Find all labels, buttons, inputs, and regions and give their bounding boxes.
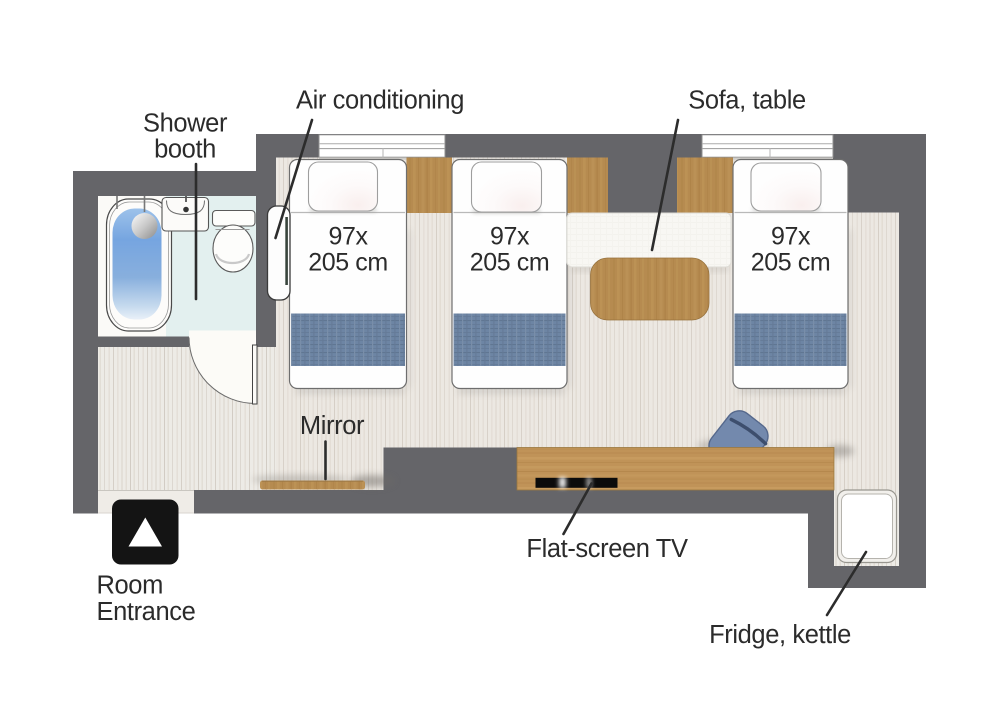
- svg-text:Shower: Shower: [143, 110, 228, 138]
- svg-text:97x: 97x: [771, 223, 811, 251]
- svg-text:97x: 97x: [328, 223, 368, 251]
- svg-text:Entrance: Entrance: [97, 598, 196, 626]
- svg-text:Room: Room: [97, 572, 163, 600]
- svg-text:97x: 97x: [490, 223, 530, 251]
- svg-text:Fridge, kettle: Fridge, kettle: [709, 621, 851, 649]
- svg-text:Sofa, table: Sofa, table: [688, 87, 806, 115]
- svg-text:205 cm: 205 cm: [308, 249, 388, 277]
- svg-text:205 cm: 205 cm: [470, 249, 550, 277]
- svg-text:Flat-screen TV: Flat-screen TV: [526, 535, 688, 563]
- svg-text:Mirror: Mirror: [300, 412, 365, 440]
- svg-text:booth: booth: [154, 136, 216, 164]
- svg-text:205 cm: 205 cm: [751, 249, 831, 277]
- svg-text:Air conditioning: Air conditioning: [296, 87, 464, 115]
